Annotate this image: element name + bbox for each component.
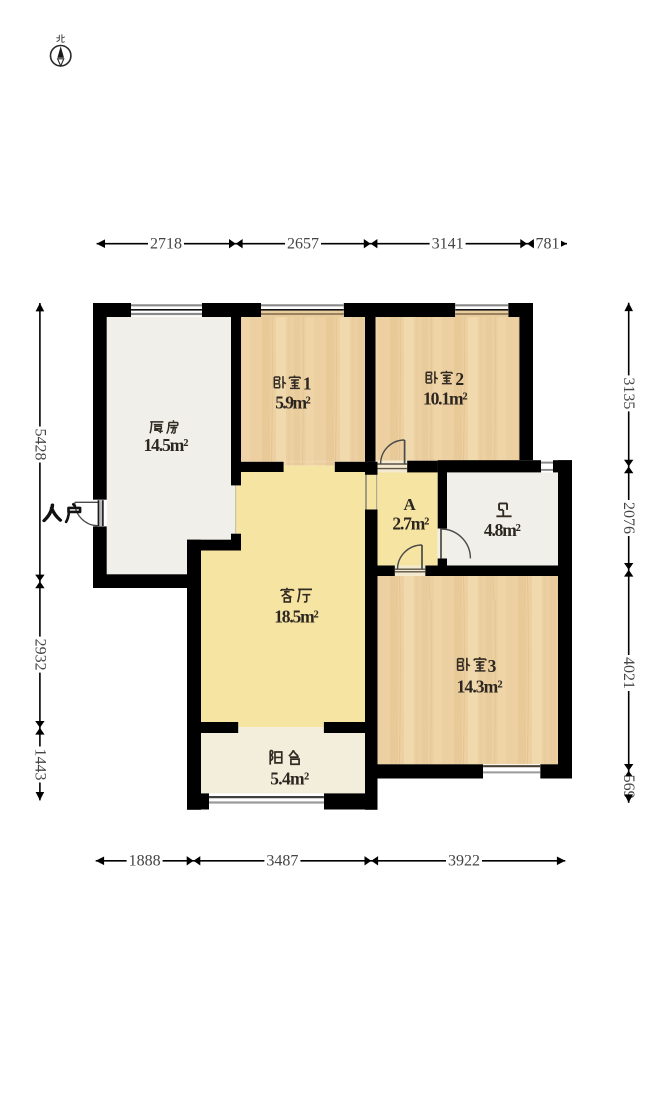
svg-text:5.4m²: 5.4m² xyxy=(270,768,309,788)
svg-text:2076: 2076 xyxy=(620,502,637,534)
svg-text:2.7m²: 2.7m² xyxy=(392,514,429,534)
svg-text:4.8m²: 4.8m² xyxy=(484,520,521,540)
svg-text:2: 2 xyxy=(455,369,464,389)
svg-text:3: 3 xyxy=(488,656,497,676)
svg-text:2657: 2657 xyxy=(287,235,319,252)
svg-text:5.9m²: 5.9m² xyxy=(275,393,311,413)
svg-text:3135: 3135 xyxy=(620,377,637,409)
svg-text:A: A xyxy=(403,495,416,514)
svg-text:781: 781 xyxy=(536,235,560,252)
svg-text:2718: 2718 xyxy=(150,235,182,252)
svg-text:1443: 1443 xyxy=(31,749,48,781)
svg-text:3922: 3922 xyxy=(448,852,480,869)
svg-text:2932: 2932 xyxy=(31,639,48,671)
svg-text:1888: 1888 xyxy=(129,852,161,869)
svg-text:1: 1 xyxy=(303,374,312,394)
svg-text:14.3m²: 14.3m² xyxy=(457,676,503,696)
svg-text:3487: 3487 xyxy=(266,852,298,869)
svg-text:5428: 5428 xyxy=(31,429,48,461)
svg-text:18.5m²: 18.5m² xyxy=(274,607,319,627)
svg-text:10.1m²: 10.1m² xyxy=(423,388,468,408)
svg-text:14.5m²: 14.5m² xyxy=(144,435,189,455)
svg-text:4021: 4021 xyxy=(620,657,637,689)
svg-text:3141: 3141 xyxy=(432,235,464,252)
